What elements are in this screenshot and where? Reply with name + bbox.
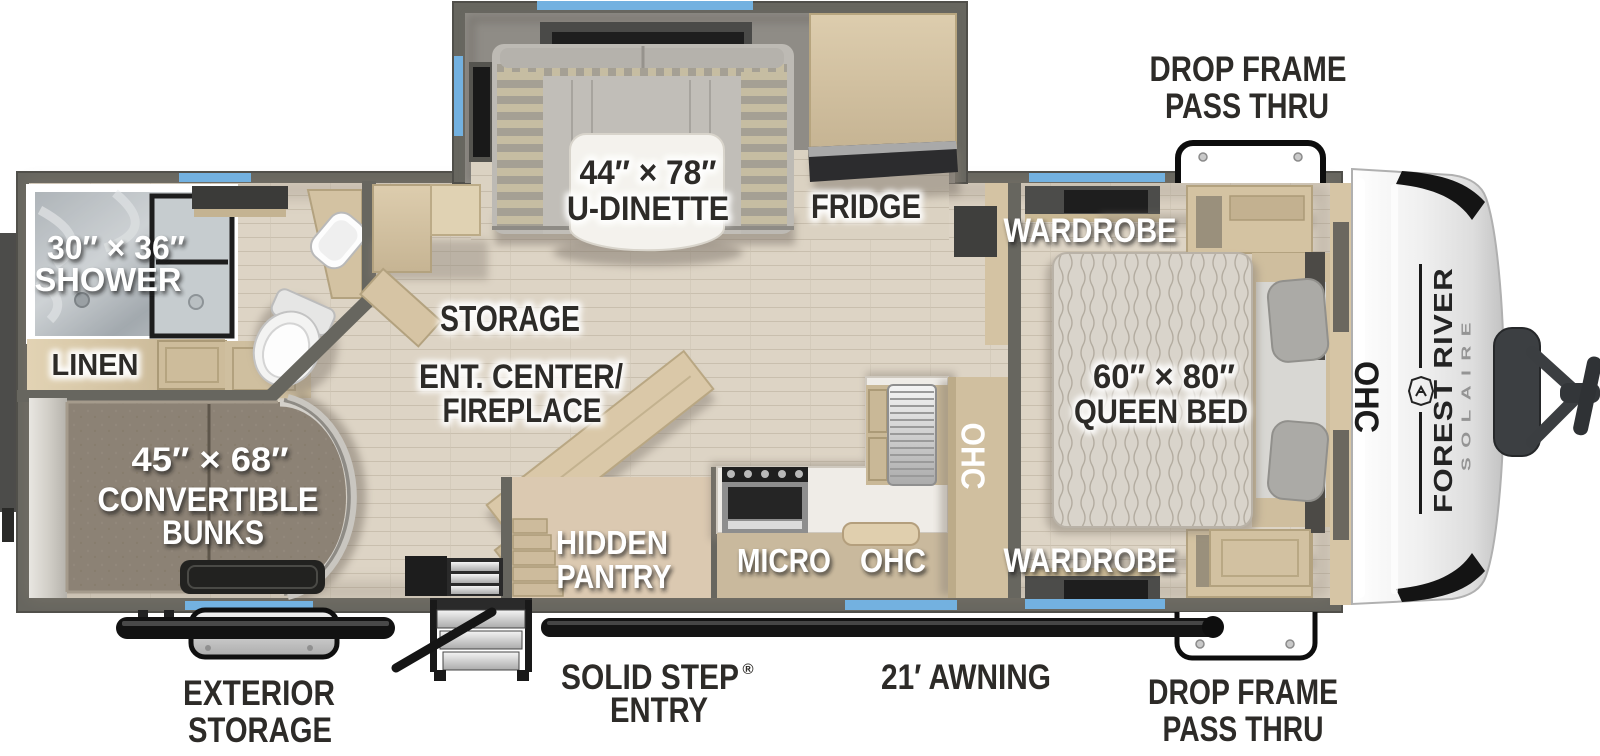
svg-text:OHC: OHC (860, 542, 926, 579)
svg-text:21′ AWNING: 21′ AWNING (881, 658, 1051, 697)
svg-text:60″ × 80″: 60″ × 80″ (1093, 358, 1235, 396)
svg-text:STORAGE: STORAGE (188, 711, 332, 750)
svg-text:WARDROBE: WARDROBE (1004, 542, 1177, 580)
svg-text:FIREPLACE: FIREPLACE (443, 392, 602, 430)
svg-text:EXTERIOR: EXTERIOR (183, 674, 335, 713)
svg-text:U-DINETTE: U-DINETTE (567, 190, 729, 228)
svg-text:44″ × 78″: 44″ × 78″ (580, 154, 717, 192)
svg-text:HIDDEN: HIDDEN (556, 524, 668, 561)
svg-text:DROP FRAME: DROP FRAME (1148, 673, 1338, 712)
svg-text:PASS THRU: PASS THRU (1165, 87, 1329, 126)
svg-text:®: ® (742, 661, 753, 678)
svg-text:45″ × 68″: 45″ × 68″ (132, 441, 289, 479)
svg-text:OHC: OHC (1347, 361, 1385, 433)
svg-text:ENT. CENTER/: ENT. CENTER/ (419, 358, 623, 396)
svg-text:PASS THRU: PASS THRU (1163, 710, 1324, 749)
svg-text:QUEEN BED: QUEEN BED (1074, 393, 1248, 431)
svg-text:DROP FRAME: DROP FRAME (1150, 50, 1347, 89)
svg-text:LINEN: LINEN (52, 347, 139, 382)
svg-text:ENTRY: ENTRY (610, 691, 708, 730)
svg-text:BUNKS: BUNKS (162, 514, 264, 552)
svg-text:STORAGE: STORAGE (440, 298, 580, 339)
svg-text:FRIDGE: FRIDGE (811, 188, 921, 226)
svg-text:FOREST RIVER: FOREST RIVER (1428, 267, 1458, 513)
svg-text:WARDROBE: WARDROBE (1004, 212, 1177, 250)
svg-text:MICRO: MICRO (737, 542, 831, 579)
svg-text:SHOWER: SHOWER (35, 261, 182, 298)
svg-text:PANTRY: PANTRY (557, 558, 672, 595)
svg-text:SOLAIRE: SOLAIRE (1458, 313, 1473, 471)
svg-text:OHC: OHC (954, 423, 991, 490)
